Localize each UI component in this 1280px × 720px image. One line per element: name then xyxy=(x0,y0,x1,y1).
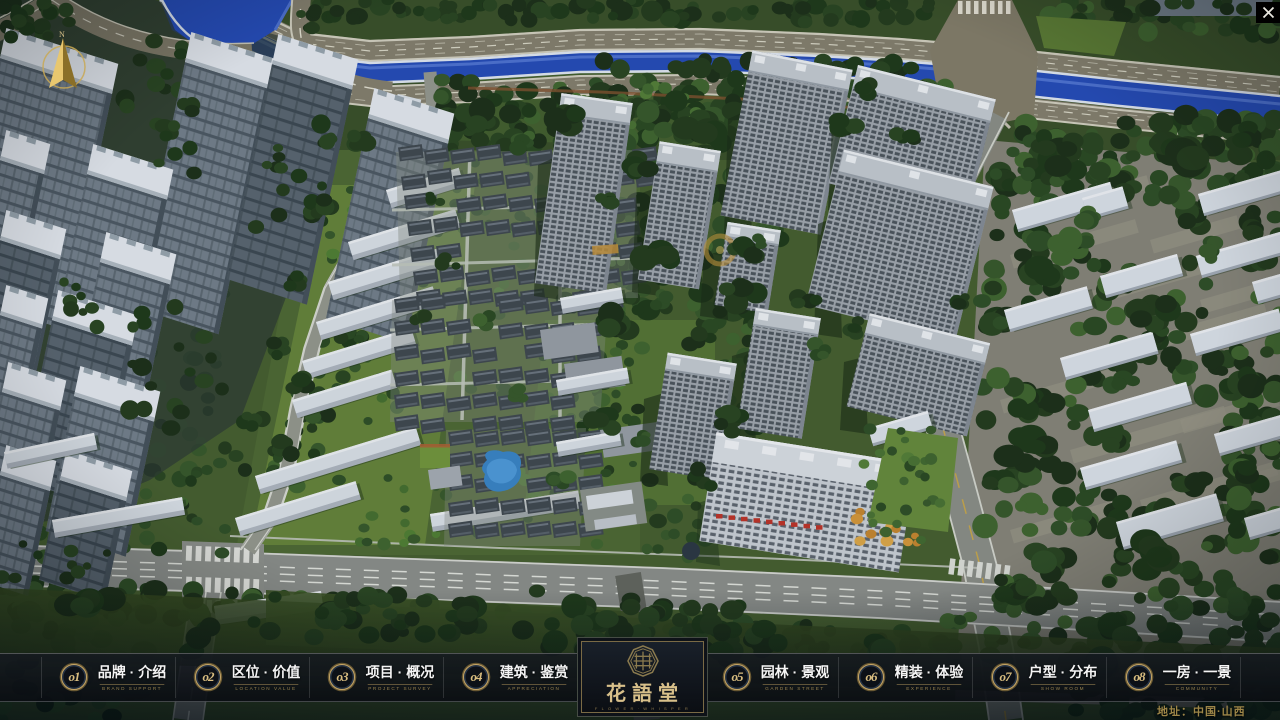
svg-text:N: N xyxy=(59,30,65,39)
